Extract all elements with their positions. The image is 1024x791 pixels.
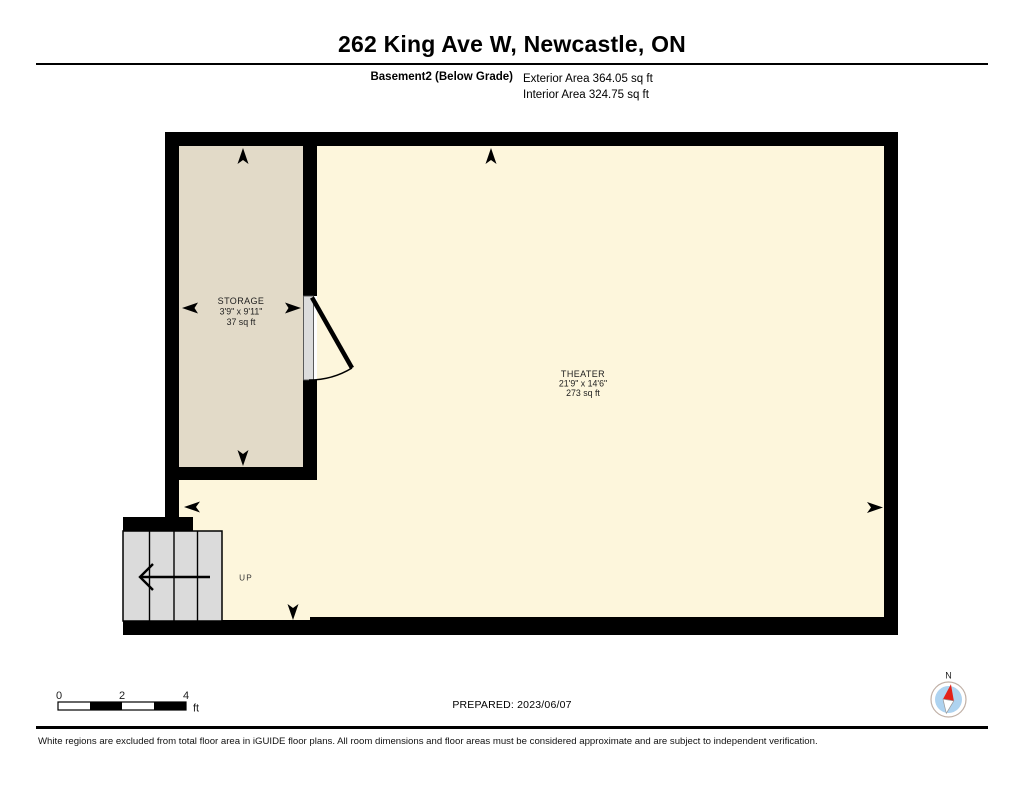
storage-area: 37 sq ft [227,317,256,327]
wall-bottom-left [123,620,310,635]
wall-stair-bump-top [123,517,193,531]
wall-right [884,132,898,635]
storage-dimensions: 3'9" x 9'11" [220,307,263,317]
stairs-up-label: UP [239,574,253,583]
door-opening-slab [304,296,314,380]
theater-area: 273 sq ft [566,388,600,398]
wall-divider-upper [303,132,317,296]
theater-name: THEATER [561,369,605,379]
theater-dimensions: 21'9" x 14'6" [559,379,607,389]
wall-top [165,132,898,146]
disclaimer-text: White regions are excluded from total fl… [38,736,818,747]
prepared-date: PREPARED: 2023/06/07 [0,699,1024,711]
floor-plan-page: 262 King Ave W, Newcastle, ON Basement2 … [0,0,1024,791]
wall-bottom-right [310,617,898,635]
north-label: N [945,671,952,681]
storage-name: STORAGE [218,296,265,306]
wall-storage-bottom [165,467,317,480]
wall-divider-lower [303,380,317,480]
floor-plan-drawing: UP STORAGE 3'9" x 9'11" 37 sq ft THEATER [0,0,1024,791]
footer-divider [36,726,988,729]
